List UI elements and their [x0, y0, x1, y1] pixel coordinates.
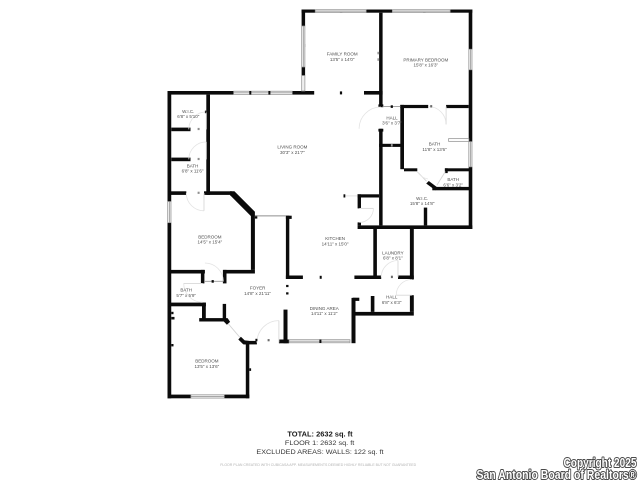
- svg-text:EXCLUDED AREAS: WALLS: 122 sq.: EXCLUDED AREAS: WALLS: 122 sq. ft: [256, 449, 383, 456]
- svg-text:14'11" x 11'2": 14'11" x 11'2": [311, 311, 338, 316]
- svg-text:30'3" x 21'7": 30'3" x 21'7": [280, 150, 305, 155]
- svg-text:LIVING ROOM: LIVING ROOM: [277, 145, 307, 150]
- svg-text:DINING AREA: DINING AREA: [310, 306, 339, 311]
- svg-text:13'5" x 14'0": 13'5" x 14'0": [330, 57, 355, 62]
- svg-text:FLOOR PLAN CREATED WITH CUBICA: FLOOR PLAN CREATED WITH CUBICASA APP. ME…: [220, 463, 417, 467]
- svg-text:14'8" x 21'11": 14'8" x 21'11": [244, 291, 271, 296]
- svg-text:W.I.C.: W.I.C.: [416, 196, 428, 201]
- svg-text:W.I.C.: W.I.C.: [182, 109, 194, 114]
- svg-text:6'8" x 6'3": 6'8" x 6'3": [382, 300, 402, 305]
- svg-text:TOTAL: 2632 sq. ft: TOTAL: 2632 sq. ft: [287, 432, 353, 439]
- svg-text:6'8" x 11'6": 6'8" x 11'6": [182, 169, 204, 174]
- svg-text:BATH: BATH: [187, 163, 199, 168]
- svg-text:14'11" x 15'0": 14'11" x 15'0": [322, 241, 349, 246]
- svg-text:BEDROOM: BEDROOM: [198, 234, 222, 239]
- svg-text:KITCHEN: KITCHEN: [325, 236, 345, 241]
- svg-text:15'8" x 16'3": 15'8" x 16'3": [413, 63, 438, 68]
- svg-text:LAUNDRY: LAUNDRY: [382, 250, 403, 255]
- svg-text:San Antonio Board of Realtors®: San Antonio Board of Realtors®: [477, 468, 638, 480]
- svg-text:15'8" x 14'8": 15'8" x 14'8": [410, 201, 435, 206]
- svg-text:HALL: HALL: [386, 295, 398, 300]
- svg-text:FAMILY ROOM: FAMILY ROOM: [327, 52, 358, 57]
- svg-text:5'7" x 5'9": 5'7" x 5'9": [176, 293, 196, 298]
- svg-text:BATH: BATH: [180, 288, 192, 293]
- svg-text:14'5" x 15'4": 14'5" x 15'4": [198, 240, 223, 245]
- svg-text:BATH: BATH: [447, 177, 459, 182]
- svg-text:PRIMARY BEDROOM: PRIMARY BEDROOM: [403, 57, 448, 62]
- svg-text:6'8" x 5'10": 6'8" x 5'10": [177, 114, 200, 119]
- svg-text:FLOOR 1: 2632 sq. ft: FLOOR 1: 2632 sq. ft: [285, 440, 355, 447]
- svg-text:BATH: BATH: [429, 142, 441, 147]
- svg-text:11'8" x 13'6": 11'8" x 13'6": [422, 147, 447, 152]
- svg-text:13'5" x 13'6": 13'5" x 13'6": [195, 364, 220, 369]
- svg-text:FOYER: FOYER: [250, 286, 266, 291]
- svg-text:BEDROOM: BEDROOM: [195, 359, 219, 364]
- svg-text:3'6" x 3'7": 3'6" x 3'7": [382, 121, 402, 126]
- svg-text:6'8" x 8'1": 6'8" x 8'1": [383, 256, 403, 261]
- svg-text:6'6" x 3'2": 6'6" x 3'2": [443, 182, 463, 187]
